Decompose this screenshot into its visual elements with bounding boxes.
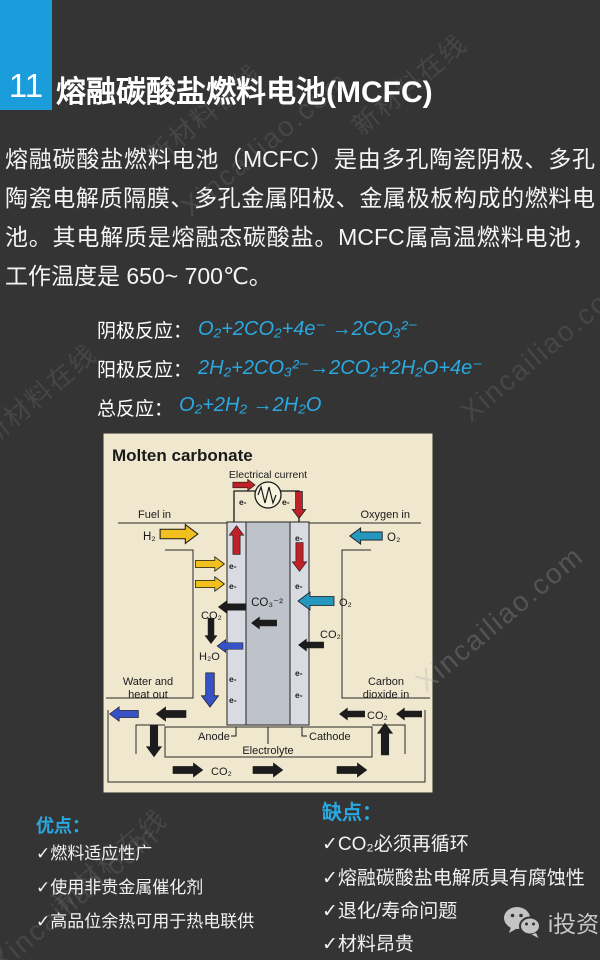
brand-footer: i投资 [503, 905, 599, 939]
pros-item: ✓高品位余热可用于热电联供 [36, 907, 254, 932]
cathode-name-label: Cathode [309, 731, 351, 743]
anode-reaction-row: 阳极反应： 2H₂+2CO₃²⁻→2CO₂+2H₂O+4e⁻ [97, 355, 483, 394]
o2-label: O₂ [387, 532, 400, 544]
overall-reaction-row: 总反应： O₂+2H₂ →2H₂O [97, 394, 483, 433]
pros-item: ✓燃料适应性广 [36, 839, 152, 864]
diagram-title: Molten carbonate [112, 446, 253, 465]
watermark: 新材料在线 [0, 334, 104, 452]
electrical-current-label: Electrical current [229, 469, 307, 481]
slide-number-box: 11 [0, 0, 52, 110]
brand-label: i投资 [548, 905, 599, 939]
co2-mid-label: CO₂ [320, 629, 341, 641]
co2-right-label: CO₂ [367, 710, 388, 722]
oxygen-in-label: Oxygen in [360, 509, 410, 521]
load-resistor-icon [255, 482, 281, 508]
cathode-reaction-label: 阴极反应： [97, 316, 192, 343]
slide: 11 熔融碳酸盐燃料电池(MCFC) 熔融碳酸盐燃料电池（MCFC）是由多孔陶瓷… [0, 0, 600, 960]
cons-item: ✓材料昂贵 [322, 929, 414, 956]
carbonate-ion-label: CO₃⁻² [251, 597, 283, 609]
electron-label: e- [229, 581, 237, 591]
cathode-reaction-row: 阴极反应： O₂+2CO₂+4e⁻ →2CO₃²⁻ [97, 316, 483, 355]
h2-label: H₂ [143, 531, 156, 543]
electron-label: e- [229, 561, 237, 571]
anode-reaction-equation: 2H₂+2CO₃²⁻→2CO₂+2H₂O+4e⁻ [192, 355, 483, 380]
electron-label: e- [282, 497, 290, 507]
mcfc-diagram: Molten carbonate Electrical current e- e… [103, 433, 433, 793]
reaction-equations: 阴极反应： O₂+2CO₂+4e⁻ →2CO₃²⁻ 阳极反应： 2H₂+2CO₃… [97, 316, 483, 433]
anode-name-label: Anode [198, 731, 230, 743]
water-heat-out-label: heat out [128, 689, 168, 701]
carbon-dioxide-in-label: dioxide in [363, 689, 409, 701]
electron-label: e- [239, 497, 247, 507]
carbon-dioxide-in-label: Carbon [368, 676, 404, 688]
wechat-icon [503, 905, 541, 939]
page-title: 熔融碳酸盐燃料电池(MCFC) [56, 67, 433, 111]
electron-label: e- [295, 581, 303, 591]
electron-label: e- [229, 695, 237, 705]
cons-heading: 缺点： [322, 796, 382, 825]
overall-reaction-label: 总反应： [97, 394, 173, 421]
slide-number: 11 [9, 69, 43, 102]
water-heat-out-label: Water and [123, 676, 173, 688]
electron-label: e- [295, 668, 303, 678]
anode-reaction-label: 阳极反应： [97, 355, 192, 382]
cathode-reaction-equation: O₂+2CO₂+4e⁻ →2CO₃²⁻ [192, 316, 418, 341]
pros-item: ✓使用非贵金属催化剂 [36, 873, 203, 898]
fuel-in-label: Fuel in [138, 509, 171, 521]
co2-bottom-label: CO₂ [211, 766, 232, 778]
electron-label: e- [295, 533, 303, 543]
electrolyte-name-label: Electrolyte [242, 745, 293, 757]
overall-reaction-equation: O₂+2H₂ →2H₂O [173, 394, 321, 417]
watermark: Xincailiao.com [410, 540, 590, 699]
pros-heading: 优点： [36, 812, 90, 838]
electron-label: e- [229, 674, 237, 684]
cons-item: ✓熔融碳酸盐电解质具有腐蚀性 [322, 863, 585, 890]
cons-item: ✓CO₂必须再循环 [322, 829, 469, 856]
h2o-label: H₂O [199, 651, 220, 663]
o2-mid-label: O₂ [339, 597, 352, 609]
cons-item: ✓退化/寿命问题 [322, 896, 457, 923]
intro-paragraph: 熔融碳酸盐燃料电池（MCFC）是由多孔陶瓷阴极、多孔陶瓷电解质隔膜、多孔金属阳极… [5, 140, 595, 296]
electron-label: e- [295, 690, 303, 700]
